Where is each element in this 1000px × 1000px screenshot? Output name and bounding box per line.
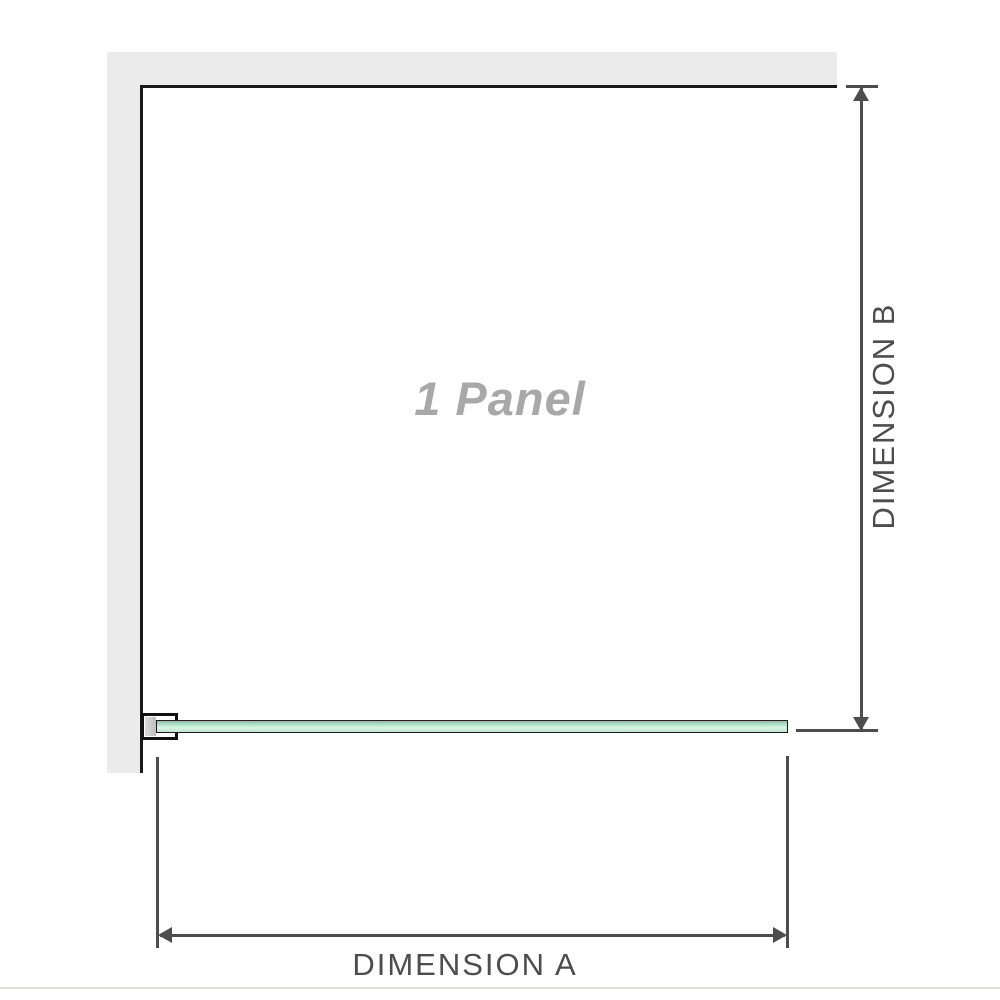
arrowhead-right-icon bbox=[773, 927, 787, 943]
wall-top-edge-line bbox=[140, 85, 837, 88]
arrowhead-up-icon bbox=[853, 87, 869, 101]
dimension-a-left-extension-line bbox=[156, 757, 159, 948]
arrowhead-left-icon bbox=[158, 927, 172, 943]
wall-left bbox=[107, 52, 140, 773]
panel-count-label: 1 Panel bbox=[350, 370, 650, 428]
panel-dimension-diagram: 1 Panel DIMENSION B DIMENSION A bbox=[0, 0, 1000, 1000]
page-baseline-rule bbox=[0, 987, 1000, 989]
wall-left-edge-line bbox=[140, 85, 143, 773]
wall-top bbox=[107, 52, 837, 85]
dimension-a-line bbox=[160, 934, 785, 937]
dimension-b-line bbox=[860, 88, 863, 731]
dimension-b-label: DIMENSION B bbox=[868, 291, 900, 541]
dimension-a-label: DIMENSION A bbox=[315, 948, 615, 982]
glass-panel bbox=[156, 720, 788, 733]
arrowhead-down-icon bbox=[853, 717, 869, 731]
dimension-a-right-extension-line bbox=[786, 756, 789, 948]
bracket-pad bbox=[145, 717, 156, 736]
